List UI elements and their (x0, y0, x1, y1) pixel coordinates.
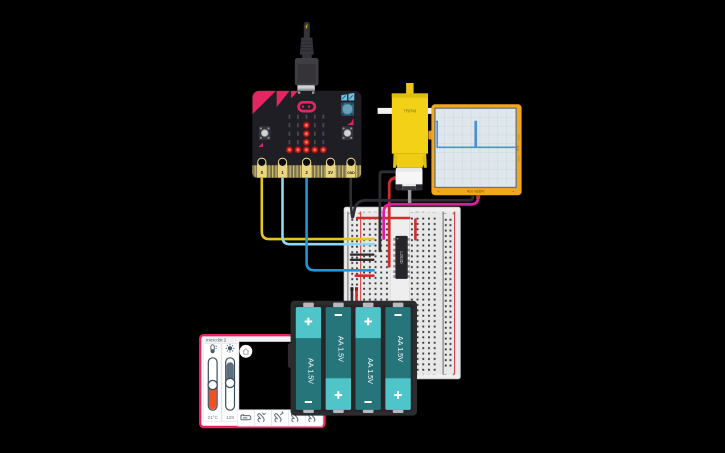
svg-text:AA 1.5V: AA 1.5V (336, 336, 345, 362)
svg-text:a: a (362, 211, 366, 213)
svg-text:128: 128 (226, 415, 234, 420)
svg-text:GND: GND (347, 171, 355, 175)
svg-text:+: + (452, 372, 455, 378)
svg-text:h: h (421, 211, 425, 213)
svg-text:–: – (444, 371, 447, 377)
svg-text:AA 1.5V: AA 1.5V (396, 336, 405, 362)
svg-text:21°C: 21°C (208, 415, 219, 420)
svg-text:AA 1.5V: AA 1.5V (306, 358, 315, 384)
svg-text:g: g (415, 211, 419, 213)
svg-text:+: + (358, 211, 361, 217)
svg-text:40.0 ms/DIV: 40.0 ms/DIV (467, 189, 485, 193)
svg-text:j: j (432, 211, 436, 213)
svg-text:f: f (410, 212, 414, 213)
svg-text:–: – (444, 211, 447, 217)
svg-text:5 V: 5 V (516, 145, 520, 151)
svg-text:7RPM: 7RPM (403, 108, 416, 113)
svg-text:+: + (438, 189, 440, 193)
svg-text:j: j (432, 373, 436, 375)
svg-text:h: h (421, 374, 425, 376)
svg-text:c: c (373, 211, 377, 213)
svg-text:b: b (368, 211, 372, 213)
svg-text:3V: 3V (328, 170, 333, 175)
svg-text:+: + (512, 189, 514, 193)
svg-text:AA 1.5V: AA 1.5V (366, 358, 375, 384)
svg-text:L293D: L293D (399, 251, 404, 263)
svg-text:+: + (452, 211, 455, 217)
svg-text:micro:bit 2: micro:bit 2 (206, 337, 227, 342)
